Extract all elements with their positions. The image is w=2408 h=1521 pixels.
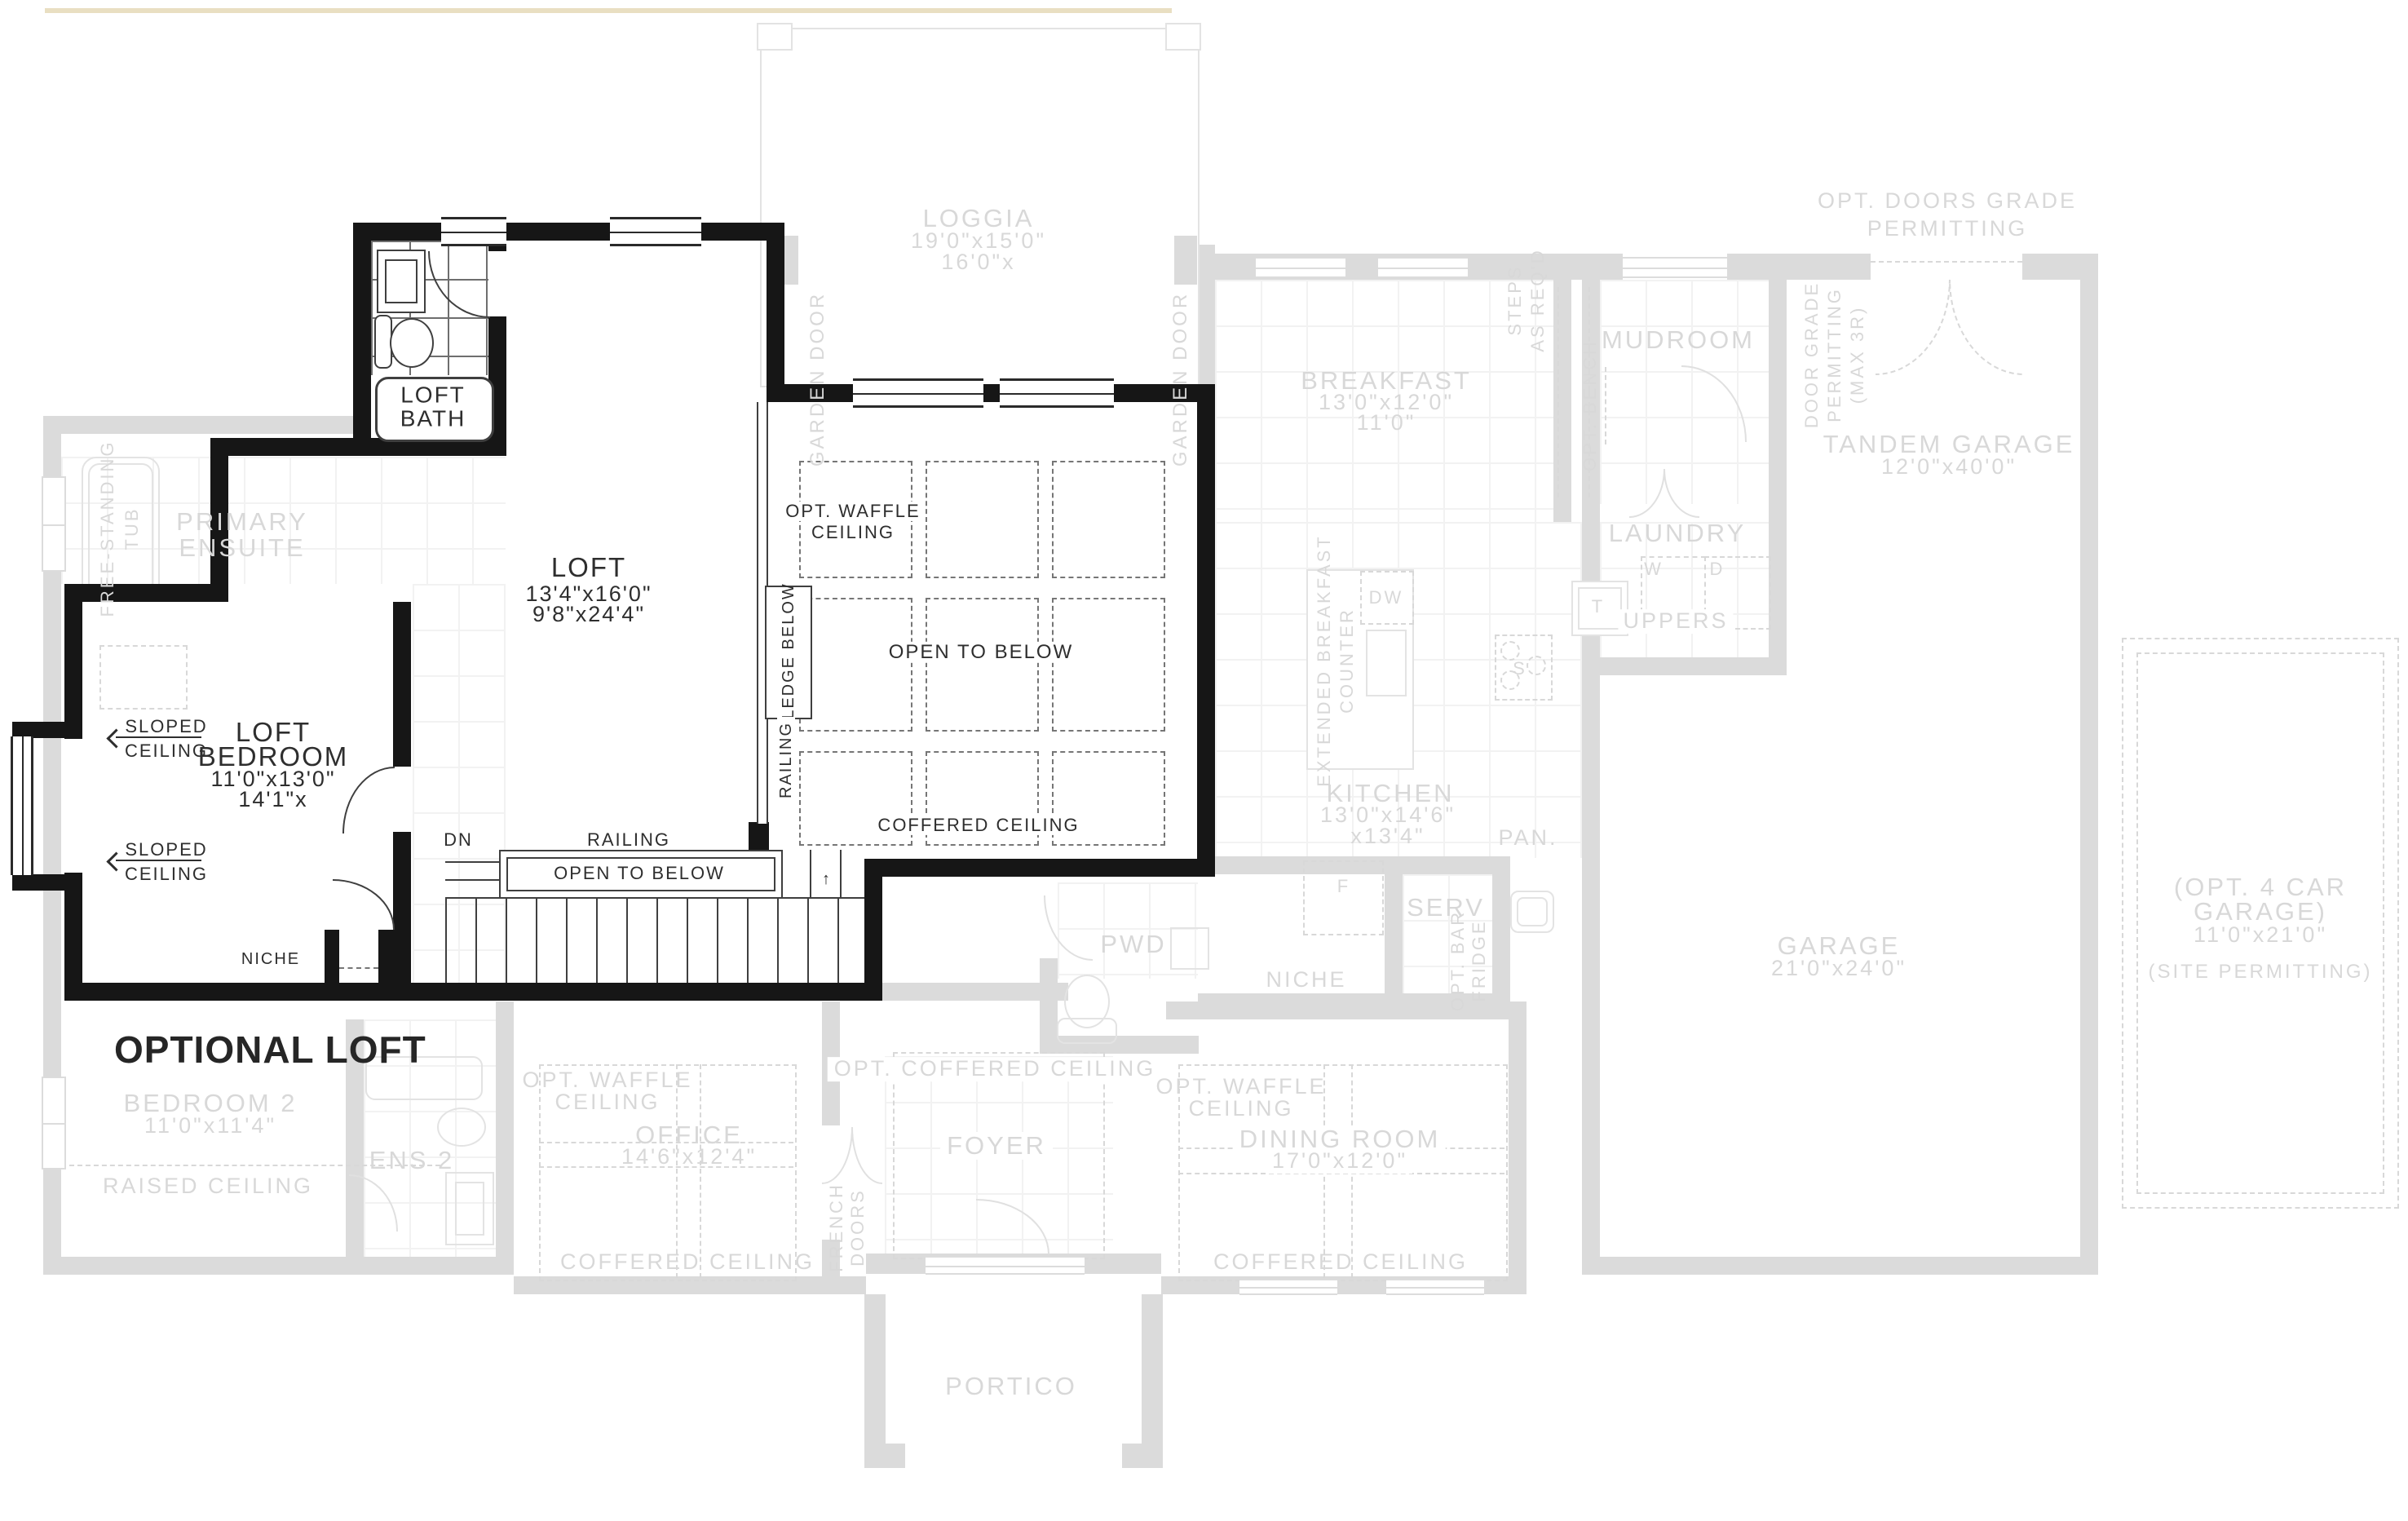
breakfast-mud-divider [1553,280,1571,522]
laundry-door-arc-1 [1629,469,1665,518]
niche-dashed [339,967,378,969]
sloped-arrow-1 [116,736,201,738]
laundry-door-arc-2 [1664,469,1699,518]
wardrobe-dashed [99,645,188,710]
portico-column-left [864,1444,905,1468]
waffle-5 [926,598,1039,732]
bed2-window [42,1077,66,1169]
loft-bath-label-2: BATH [400,407,466,432]
open-to-below-label: OPEN TO BELOW [884,642,1079,663]
burner-3 [1527,656,1546,675]
openarea-window-1 [853,378,983,408]
kitchen-dim2: x13'4" [1350,825,1425,849]
coffered-ceiling-label: COFFERED CEILING [873,816,1084,835]
opt-doors-label-2: PERMITTING [1867,217,2028,241]
breakfast-window-2 [1378,257,1468,278]
waffle-2 [926,461,1039,578]
mudroom-label: MUDROOM [1602,326,1755,354]
pwd-label: PWD [1100,931,1166,958]
ext-counter-1: EXTENDED BREAKFAST [1314,534,1334,787]
divider-wall-lower [393,832,411,1001]
dining-coffered: COFFERED CEILING [1213,1250,1468,1275]
dw-label: DW [1369,588,1404,608]
stair-open-below-label: OPEN TO BELOW [554,864,725,883]
opt-waffle-label-2: CEILING [808,523,898,542]
steps-dashed-1 [1557,287,1559,497]
opt4car-note: (SITE PERMITTING) [2149,962,2373,983]
breakfast-dim2: 11'0" [1357,411,1416,436]
laundry-label: LAUNDRY [1609,520,1747,547]
garage-dim: 21'0"x24'0" [1771,957,1907,981]
opt-coffered-label: OPT. COFFERED CEILING [828,1057,1163,1081]
page-title: OPTIONAL LOFT [114,1028,426,1072]
dining-right-wall [1509,1001,1527,1294]
serv-right-wall [1492,874,1510,1011]
steps-label-1: STEPS [1505,264,1525,335]
loft-label: LOFT [551,553,626,582]
railing-label: RAILING [587,830,670,850]
bedroom-left-wall-lower [64,873,82,1001]
openarea-window-2 [1000,378,1114,408]
pwd-door-arc [1044,895,1093,961]
portico-right-wall [1142,1294,1163,1468]
dining-waffle-2: CEILING [1188,1097,1293,1121]
stair-right-wall [864,859,882,1001]
stair-treads [445,897,864,983]
tandem-dim: 12'0"x40'0" [1881,455,2017,480]
garden-door-left-label: GARDEN DOOR [807,292,828,466]
sloped-ceiling-1b: CEILING [125,741,208,761]
dryer-label: D [1710,559,1725,579]
dining-dim: 17'0"x12'0" [1267,1149,1412,1174]
bench-dashed-line [1605,367,1606,444]
garden-door-right-label: GARDEN DOOR [1170,292,1191,466]
leftwing-top-wall [43,416,355,434]
loft-bottom-wall [64,983,882,1001]
waffle-3 [1052,461,1165,578]
opt-doors-label-1: OPT. DOORS GRADE [1818,189,2077,214]
waffle-6 [1052,598,1165,732]
dn-label: DN [444,830,473,850]
door-grade-3: (MAX 3R) [1848,306,1867,405]
tub-label-1: FREE-STANDING [98,440,117,617]
niche-stub-left [325,930,339,1001]
bath-left-wall [353,223,371,456]
opt-bench-label: OPT. BENCH [1580,339,1600,471]
floor-plan: LOGGIA 19'0"x15'0" 16'0"x GARDEN DOOR GA… [0,0,2408,1521]
sloped-ceiling-1a: SLOPED [125,717,207,736]
fridge-label: F [1337,877,1350,896]
opt-waffle-label-1: OPT. WAFFLE [782,502,923,521]
ens2-label: ENS 2 [369,1147,455,1174]
opt-doors-arc-1 [1876,280,1951,375]
bedroom-top-wall [64,584,228,602]
raised-ceiling-label: RAISED CEILING [103,1174,313,1199]
niche-door-arc [333,879,395,930]
ensuite-window [42,476,66,572]
opt4car-dim: 11'0"x21'0" [2194,923,2327,948]
opt-bar-2: FRIDGE [1469,919,1489,1001]
rightwing-top-wall-b [1727,254,1871,280]
ens2-shower-inner [455,1182,484,1236]
island-fridge [1366,630,1407,696]
fridge-box [1303,860,1384,935]
office-dim: 14'6"x12'4" [621,1145,757,1169]
loggia-pier-topleft [757,23,793,51]
opt-doors-arc-2 [1949,280,2024,375]
niche-stub-right [378,930,393,1001]
bedroom-left-wall-upper [64,584,82,739]
office-waffle-2: CEILING [555,1090,660,1115]
portico-column-right [1122,1444,1163,1468]
sloped-arrowhead-2 [106,851,126,871]
rightwing-right-wall [2080,254,2098,1275]
primary-ensuite-2: ENSUITE [179,534,305,562]
loggia-dim2: 16'0"x [941,250,1015,275]
bedroom2-dim: 11'0"x11'4" [144,1114,276,1139]
top-accent-line [45,8,1172,13]
ledge-below-label: LEDGE BELOW [780,582,798,719]
mudroom-window [1623,257,1727,278]
primary-ensuite-1: PRIMARY [176,508,308,536]
loft-right-wall-upper [767,223,784,402]
stair-line-1 [445,861,499,863]
serv-left-wall [1385,874,1403,1011]
bay-bottom-stub [12,874,64,891]
french-doors-2: DOORS [848,1188,868,1267]
sink-label: S [1513,659,1527,679]
bay-window [11,736,33,875]
uppers-label: UPPERS [1618,609,1733,634]
toilet-bowl [390,318,434,368]
steps-label-2: AS REQ'D [1528,248,1548,352]
loft-bedroom-dim2: 14'1"x [238,788,307,812]
opt-bar-1: OPT. BAR [1448,910,1468,1011]
foyer-door-gap [926,1256,1085,1275]
ens2-toilet-bowl [437,1108,486,1147]
laundry-tub-label: T [1592,597,1605,617]
portico-label: PORTICO [945,1373,1077,1400]
bedroom-door-arc [342,767,395,833]
office-coffered: COFFERED CEILING [560,1250,815,1275]
openarea-top-wall [767,384,1215,402]
loft-window-1 [441,217,506,246]
tub-label-2: TUB [122,507,142,550]
divider-wall-upper [393,602,411,767]
pan-label: PAN. [1498,826,1557,851]
sloped-ceiling-2a: SLOPED [125,840,207,860]
laundry-bottom-wall [1600,657,1787,675]
french-door-arc-1 [822,1127,853,1184]
french-door-arc-2 [851,1127,882,1184]
sloped-arrowhead-1 [106,728,126,748]
dining-window-1 [1239,1279,1337,1295]
pwd-vanity [1170,927,1209,970]
opt4car-2: GARAGE) [2194,898,2327,926]
pwd-toilet-base [1057,1018,1117,1044]
loft-top-wall [353,223,784,241]
bar-sink-inner [1517,897,1548,926]
loft-dim2: 9'8"x24'4" [532,603,645,627]
niche-label: NICHE [241,950,300,968]
loft-window-2 [610,217,701,246]
foyer-label: FOYER [940,1132,1053,1160]
stair-up-arrow: ↑ [822,870,832,888]
rightwing-bottom-wall [1600,1257,2098,1275]
door-grade-2: PERMITTING [1825,287,1845,422]
portico-left-wall [864,1294,886,1468]
leftwing-bottom-wall [43,1257,514,1275]
tandem-left-wall [1769,254,1787,675]
dining-window-2 [1386,1279,1484,1295]
opt-doors-opening [1871,261,2022,263]
washer-label: W [1644,559,1664,579]
waffle-4 [799,598,912,732]
french-doors-1: FRENCH [827,1183,846,1272]
openarea-right-wall [1197,384,1215,877]
office-left-wall [496,1001,514,1275]
openarea-bottom-wall [864,859,1215,877]
ext-counter-2: COUNTER [1337,608,1357,714]
door-grade-1: DOOR GRADE [1802,281,1822,428]
bath-vanity-basin [385,259,418,303]
loft-bath-label-1: LOFT [400,383,466,409]
loggia-pier-topright [1165,23,1201,51]
sloped-ceiling-2b: CEILING [125,864,208,884]
niche2-label: NICHE [1266,968,1346,993]
breakfast-window-1 [1256,257,1345,278]
serv-label: SERV [1407,894,1485,922]
railing-v-label: RAILING [777,717,795,803]
breakfast-top-wall [1198,254,1553,280]
office-ceiling-vline2 [700,1064,701,1278]
bay-top-stub [12,722,64,738]
office-ceiling-vline1 [676,1064,678,1278]
stair-line-2 [445,879,499,881]
sloped-arrow-2 [116,860,201,861]
